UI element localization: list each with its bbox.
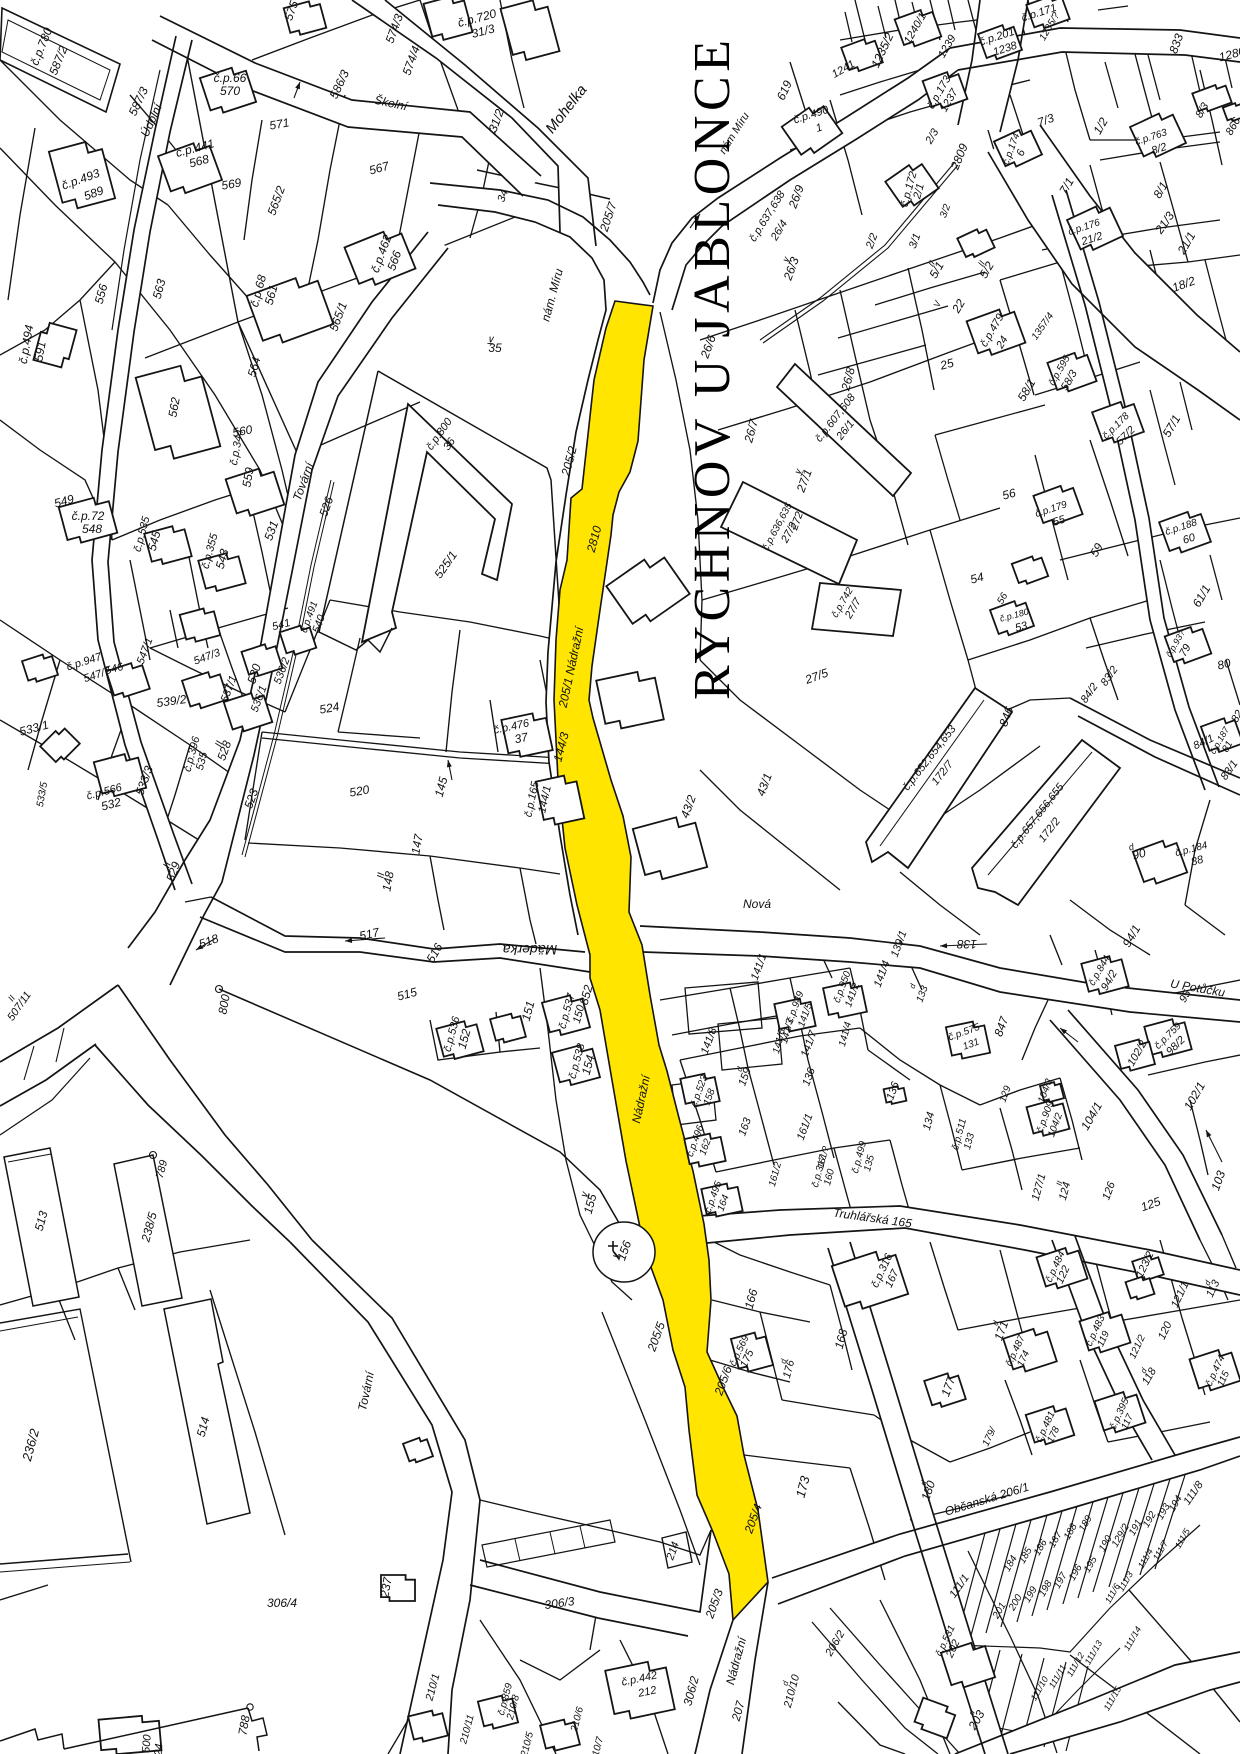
svg-text:RYCHNOV U JABLONCE: RYCHNOV U JABLONCE — [684, 40, 741, 700]
svg-text:24: 24 — [152, 1743, 165, 1754]
svg-text:500: 500 — [140, 1733, 154, 1753]
svg-text:č.p.72: č.p.72 — [72, 509, 105, 523]
svg-text:306/4: 306/4 — [267, 1596, 297, 1610]
svg-text:548: 548 — [82, 522, 102, 536]
svg-text:⊻: ⊻ — [486, 336, 494, 347]
svg-text:570: 570 — [220, 84, 240, 98]
svg-text:Mäderka: Mäderka — [503, 942, 558, 958]
svg-text:138: 138 — [957, 937, 977, 951]
svg-text:č.p.66: č.p.66 — [214, 71, 247, 85]
svg-text:Nová: Nová — [743, 897, 771, 911]
